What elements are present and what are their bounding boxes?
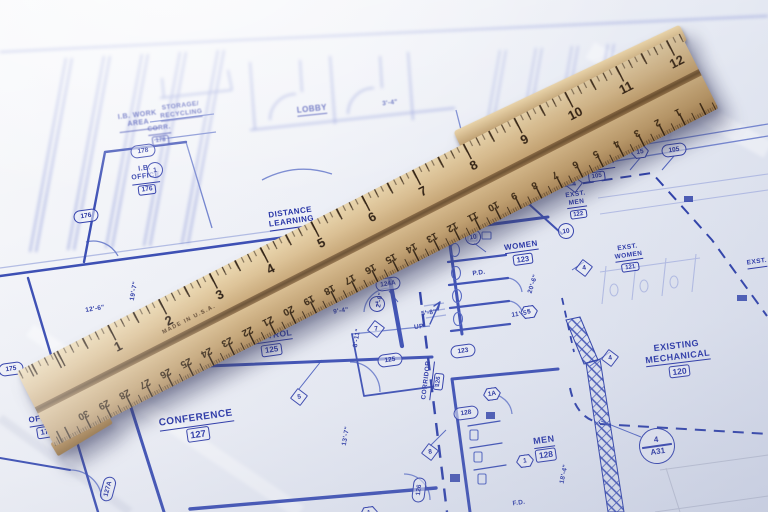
room-name-text: EXST. WOMEN bbox=[613, 242, 643, 263]
room-name-text: EXST. MEN bbox=[565, 190, 588, 210]
tag-text: 1A bbox=[484, 388, 501, 401]
keynote-circle-tag: 10 bbox=[557, 222, 575, 240]
tag-text: 4 bbox=[582, 264, 587, 271]
room-number: 176 bbox=[138, 184, 157, 196]
keynote-diamond-tag: 4 bbox=[575, 259, 593, 277]
keynote-hex-tag: 1A bbox=[482, 386, 502, 401]
room-number: 128 bbox=[535, 447, 558, 462]
dimension-text: 5'-8" bbox=[421, 308, 437, 317]
room-name-text: STORAGE/ RECYCLING bbox=[159, 100, 203, 122]
room-name-text: CORRIDOR bbox=[420, 360, 434, 400]
door-tag: 125 bbox=[377, 352, 404, 368]
door-tag: 126 bbox=[411, 477, 427, 503]
room-label: STORAGE/ RECYCLING bbox=[159, 100, 203, 122]
dimension-text: 18'-4" bbox=[559, 464, 570, 484]
detail-number: 4 bbox=[653, 436, 659, 445]
tag-text: 4 bbox=[608, 354, 613, 361]
detail-sheet: A31 bbox=[650, 447, 666, 457]
room-number: 122 bbox=[569, 208, 587, 220]
room-name-text: LOBBY bbox=[296, 103, 327, 118]
tag-text: 7 bbox=[374, 325, 379, 332]
room-number: 121 bbox=[621, 261, 639, 273]
tag-text: 1 bbox=[517, 455, 534, 468]
room-number: 178 bbox=[152, 135, 170, 147]
room-label: EXST. WOMEN121 bbox=[613, 242, 645, 274]
room-label: EXST. MEN122 bbox=[565, 190, 589, 221]
blueprint-photo: I.B. WORK AREASTORAGE/ RECYCLINGCORR.178… bbox=[0, 0, 768, 512]
dimension-text: 8'-11" bbox=[352, 328, 362, 348]
room-number: 125 bbox=[261, 342, 283, 357]
dimension-text: P.D. bbox=[472, 269, 486, 278]
tag-text: 5 bbox=[297, 393, 302, 400]
room-label: MEN128 bbox=[533, 433, 558, 462]
room-number: 120 bbox=[668, 364, 690, 379]
door-tag: 176 bbox=[73, 208, 100, 224]
room-label: LOBBY bbox=[296, 103, 327, 118]
room-name-text: MEN bbox=[533, 433, 556, 448]
room-name-text: EXISTING MECHANICAL bbox=[643, 337, 710, 368]
room-number: 123 bbox=[512, 252, 533, 266]
room-name-text: EXST. bbox=[746, 257, 767, 269]
dimension-text: 3'-4" bbox=[382, 99, 398, 108]
keynote-hex-tag: 1 bbox=[359, 505, 379, 512]
dimension-text: 20'-6" bbox=[527, 274, 540, 295]
dimension-text: 13'-7" bbox=[341, 426, 351, 446]
keynote-diamond-tag: 8 bbox=[421, 443, 439, 461]
dimension-text: 9'-4" bbox=[333, 306, 349, 315]
dimension-text: 19'-7" bbox=[129, 281, 139, 301]
room-name-text: CORR. bbox=[147, 123, 171, 135]
room-label: EXISTING MECHANICAL120 bbox=[643, 337, 712, 382]
room-label: EXST. bbox=[746, 257, 767, 269]
room-label: WOMEN123 bbox=[504, 239, 541, 268]
tag-text: 1 bbox=[361, 507, 378, 512]
dimension-text: UP bbox=[414, 323, 425, 331]
room-number: 127 bbox=[186, 426, 210, 443]
tag-text: 8 bbox=[428, 448, 433, 455]
dimension-text: F.D. bbox=[512, 499, 526, 508]
keynote-diamond-tag: 5 bbox=[290, 388, 308, 406]
keynote-diamond-tag: 4 bbox=[601, 349, 619, 367]
keynote-diamond-tag: 7 bbox=[367, 320, 385, 338]
keynote-hex-tag: 1 bbox=[515, 453, 535, 468]
door-tag: 123 bbox=[450, 343, 477, 359]
door-tag: 105 bbox=[661, 142, 688, 158]
room-name-text: WOMEN bbox=[504, 239, 539, 255]
dimension-text: 12'-6" bbox=[85, 304, 105, 314]
door-tag: 127A bbox=[98, 475, 117, 503]
door-tag: 128 bbox=[453, 405, 480, 421]
room-number: 126 bbox=[433, 373, 445, 391]
room-label: CORRIDOR126 bbox=[420, 360, 445, 401]
door-tag: 178 bbox=[130, 143, 157, 159]
room-label: CONFERENCE127 bbox=[158, 407, 236, 446]
